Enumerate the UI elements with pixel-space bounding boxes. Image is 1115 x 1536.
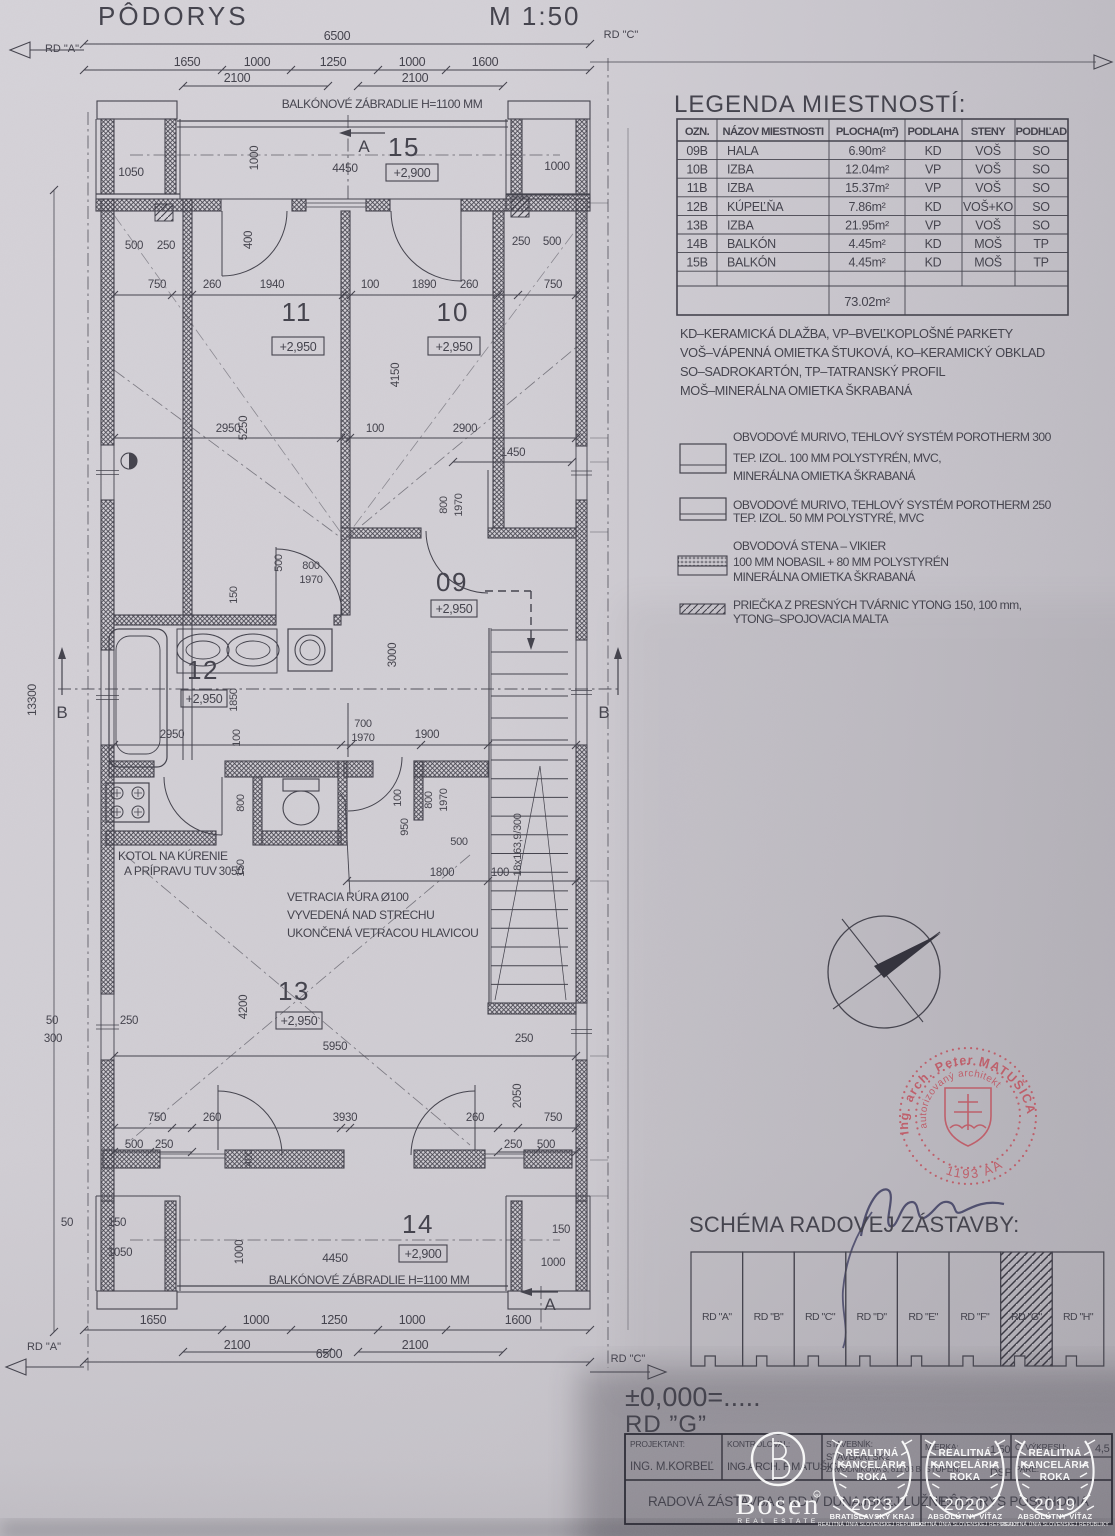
svg-text:12: 12 — [187, 655, 219, 685]
svg-text:5950: 5950 — [323, 1041, 347, 1053]
svg-text:1650: 1650 — [140, 1313, 167, 1327]
svg-text:KANCELÁRIA: KANCELÁRIA — [930, 1458, 999, 1471]
svg-text:7.86m²: 7.86m² — [848, 200, 885, 214]
svg-text:SO: SO — [1032, 144, 1050, 158]
svg-text:OZN.: OZN. — [685, 126, 710, 138]
svg-text:150: 150 — [235, 859, 247, 877]
svg-text:A: A — [544, 1295, 556, 1314]
svg-text:±0,000=.....: ±0,000=..... — [625, 1382, 761, 1412]
svg-text:3930: 3930 — [333, 1112, 357, 1124]
svg-text:300: 300 — [44, 1033, 62, 1045]
svg-text:260: 260 — [203, 279, 221, 291]
svg-text:1800: 1800 — [430, 867, 454, 879]
svg-text:HALA: HALA — [727, 144, 759, 158]
svg-text:VYVEDENÁ NAD STRECHU: VYVEDENÁ NAD STRECHU — [287, 907, 434, 922]
svg-text:BALKÓN: BALKÓN — [727, 236, 776, 251]
svg-text:1600: 1600 — [505, 1313, 532, 1327]
svg-text:500: 500 — [450, 836, 468, 848]
svg-text:M 1:50: M 1:50 — [489, 1, 581, 31]
svg-text:11B: 11B — [687, 181, 707, 195]
svg-text:SO: SO — [1032, 200, 1050, 214]
svg-text:1970: 1970 — [453, 493, 465, 516]
svg-text:A PRÍPRAVU TUV: A PRÍPRAVU TUV — [124, 863, 217, 878]
svg-text:KANCELÁRIA: KANCELÁRIA — [837, 1458, 906, 1471]
svg-text:2950: 2950 — [160, 729, 184, 741]
svg-text:21.95m²: 21.95m² — [845, 218, 889, 232]
svg-text:1970: 1970 — [351, 732, 374, 744]
svg-text:2050: 2050 — [512, 1084, 524, 1108]
svg-text:KD: KD — [925, 200, 942, 214]
svg-text:4.45m²: 4.45m² — [848, 237, 885, 251]
svg-text:1250: 1250 — [320, 55, 347, 69]
svg-text:6500: 6500 — [324, 29, 351, 43]
svg-text:RD "A": RD "A" — [702, 1311, 732, 1323]
svg-text:750: 750 — [148, 279, 166, 291]
svg-text:400: 400 — [243, 231, 255, 249]
svg-text:KD: KD — [925, 237, 942, 251]
svg-text:REAL ESTATE: REAL ESTATE — [737, 1518, 818, 1525]
svg-text:RD "A": RD "A" — [27, 1341, 61, 1353]
svg-text:BRATISLAVSKÝ KRAJ: BRATISLAVSKÝ KRAJ — [830, 1512, 915, 1521]
svg-text:IZBA: IZBA — [727, 181, 755, 195]
svg-text:REALITNÁ ÚNIA SLOVENSKEJ REPUB: REALITNÁ ÚNIA SLOVENSKEJ REPUBLIKY — [1001, 1521, 1109, 1528]
svg-text:RD "F": RD "F" — [960, 1311, 990, 1323]
svg-text:BALKÓN: BALKÓN — [727, 255, 776, 270]
svg-text:500: 500 — [125, 240, 143, 252]
svg-text:TP: TP — [1033, 256, 1048, 270]
svg-text:750: 750 — [544, 1112, 562, 1124]
svg-text:250: 250 — [504, 1139, 522, 1151]
svg-text:OBVODOVÉ MURIVO, TEHLOVÝ SYSTÉ: OBVODOVÉ MURIVO, TEHLOVÝ SYSTÉM POROTHER… — [733, 497, 1052, 512]
svg-text:KD–KERAMICKÁ DLAŽBA, VP–BVEĽKO: KD–KERAMICKÁ DLAŽBA, VP–BVEĽKOPLOŠNÉ PAR… — [680, 326, 1014, 341]
svg-text:UKONČENÁ VETRACOU HLAVICOU: UKONČENÁ VETRACOU HLAVICOU — [287, 925, 478, 940]
svg-text:700: 700 — [354, 718, 372, 730]
svg-text:250: 250 — [120, 1015, 138, 1027]
svg-text:STENY: STENY — [971, 126, 1006, 138]
svg-text:OBVODOVÉ MURIVO, TEHLOVÝ SYSTÉ: OBVODOVÉ MURIVO, TEHLOVÝ SYSTÉM POROTHER… — [733, 429, 1052, 444]
svg-text:+2,950: +2,950 — [280, 340, 317, 354]
svg-text:IZBA: IZBA — [727, 163, 755, 177]
svg-text:3000: 3000 — [387, 643, 399, 667]
svg-text:800: 800 — [438, 496, 450, 514]
svg-text:RD "G": RD "G" — [1011, 1311, 1042, 1323]
svg-text:100: 100 — [366, 423, 384, 435]
svg-text:REALITNÁ: REALITNÁ — [939, 1446, 992, 1459]
svg-text:2100: 2100 — [402, 1338, 429, 1352]
svg-text:4.45m²: 4.45m² — [848, 256, 885, 270]
svg-text:ROKA: ROKA — [1040, 1472, 1071, 1483]
svg-text:14B: 14B — [686, 237, 707, 251]
svg-text:2900: 2900 — [453, 423, 477, 435]
svg-text:SO: SO — [1032, 181, 1050, 195]
svg-text:VOŠ–VÁPENNÁ OMIETKA ŠTUKOVÁ, K: VOŠ–VÁPENNÁ OMIETKA ŠTUKOVÁ, KO–KERAMICK… — [680, 345, 1045, 360]
svg-text:800: 800 — [235, 794, 247, 812]
svg-text:RD "C": RD "C" — [805, 1311, 836, 1323]
svg-text:250: 250 — [512, 236, 530, 248]
svg-text:15: 15 — [388, 132, 420, 162]
svg-text:1000: 1000 — [541, 1257, 565, 1269]
svg-text:PLOCHA(m²): PLOCHA(m²) — [836, 126, 899, 138]
svg-text:YTONG–SPOJOVACIA MALTA: YTONG–SPOJOVACIA MALTA — [733, 612, 889, 626]
svg-text:1900: 1900 — [415, 729, 439, 741]
svg-text:VOŠ: VOŠ — [975, 143, 1001, 158]
svg-text:150: 150 — [228, 586, 240, 604]
svg-text:MOŠ–MINERÁLNA OMIETKA ŠKRABANÁ: MOŠ–MINERÁLNA OMIETKA ŠKRABANÁ — [680, 383, 913, 398]
svg-text:VOŠ+KO: VOŠ+KO — [963, 199, 1014, 214]
svg-text:1940: 1940 — [260, 279, 284, 291]
svg-text:4200: 4200 — [238, 995, 250, 1019]
svg-text:18x163,9/300: 18x163,9/300 — [512, 813, 524, 876]
svg-text:1050: 1050 — [108, 1247, 132, 1259]
svg-text:15.37m²: 15.37m² — [845, 181, 889, 195]
svg-text:100 MM NOBASIL + 80 MM POLYSTY: 100 MM NOBASIL + 80 MM POLYSTYRÉN — [733, 554, 948, 569]
svg-text:1000: 1000 — [243, 1313, 270, 1327]
svg-text:RD "H": RD "H" — [1063, 1311, 1094, 1323]
svg-text:KD: KD — [925, 144, 942, 158]
svg-text:13: 13 — [278, 976, 310, 1006]
svg-text:OBVODOVÁ STENA – VIKIER: OBVODOVÁ STENA – VIKIER — [733, 538, 886, 553]
svg-text:+2,950: +2,950 — [436, 340, 473, 354]
svg-text:1000: 1000 — [249, 146, 261, 170]
svg-text:1970: 1970 — [299, 574, 322, 586]
svg-text:1970: 1970 — [438, 788, 450, 811]
svg-text:13B: 13B — [686, 218, 707, 232]
svg-text:PÔDORYS: PÔDORYS — [98, 1, 249, 31]
svg-text:150: 150 — [108, 1217, 126, 1229]
svg-text:12.04m²: 12.04m² — [845, 163, 889, 177]
svg-text:VP: VP — [925, 181, 941, 195]
svg-text:TP: TP — [1033, 237, 1048, 251]
svg-text:1000: 1000 — [234, 1240, 246, 1264]
svg-text:+2,900: +2,900 — [405, 1247, 442, 1261]
svg-text:KD: KD — [925, 256, 942, 270]
svg-text:100: 100 — [392, 789, 404, 807]
svg-text:2950: 2950 — [216, 423, 240, 435]
svg-text:VOŠ: VOŠ — [975, 217, 1001, 232]
svg-text:500: 500 — [125, 1139, 143, 1151]
svg-text:ROKA: ROKA — [857, 1472, 888, 1483]
svg-text:500: 500 — [543, 236, 561, 248]
svg-text:73.02m²: 73.02m² — [844, 294, 891, 309]
svg-text:PRIEČKA Z PRESNÝCH TVÁRNIC YTO: PRIEČKA Z PRESNÝCH TVÁRNIC YTONG 150, 10… — [733, 597, 1022, 612]
svg-text:ROKA: ROKA — [950, 1472, 981, 1483]
svg-text:PODLAHA: PODLAHA — [907, 126, 959, 138]
svg-text:+2,950: +2,950 — [281, 1014, 318, 1028]
svg-text:BALKÓNOVÉ ZÁBRADLIE H=1100 MM: BALKÓNOVÉ ZÁBRADLIE H=1100 MM — [269, 1272, 470, 1287]
svg-text:10: 10 — [437, 297, 470, 327]
svg-text:ABSOLÚTNY VÍŤAZ: ABSOLÚTNY VÍŤAZ — [1018, 1512, 1093, 1521]
svg-text:1000: 1000 — [399, 1313, 426, 1327]
svg-text:2100: 2100 — [402, 71, 429, 85]
svg-text:VP: VP — [925, 218, 941, 232]
svg-text:VOŠ: VOŠ — [975, 180, 1001, 195]
svg-text:150: 150 — [552, 1224, 570, 1236]
svg-text:100: 100 — [231, 729, 243, 747]
svg-text:12B: 12B — [686, 200, 707, 214]
svg-text:KOTOL NA KÚRENIE: KOTOL NA KÚRENIE — [118, 848, 228, 863]
svg-text:260: 260 — [460, 279, 478, 291]
svg-text:1650: 1650 — [174, 55, 201, 69]
svg-text:ING. M.KORBEĽ: ING. M.KORBEĽ — [630, 1461, 714, 1473]
svg-text:6500: 6500 — [316, 1347, 343, 1361]
svg-text:VETRACIA RÚRA Ø100: VETRACIA RÚRA Ø100 — [287, 889, 409, 904]
svg-text:4150: 4150 — [390, 363, 402, 387]
svg-text:TEP. IZOL. 50 MM POLYSTYRÉ, MV: TEP. IZOL. 50 MM POLYSTYRÉ, MVC — [733, 510, 925, 525]
svg-text:1600: 1600 — [472, 55, 499, 69]
svg-text:950: 950 — [399, 818, 411, 836]
svg-text:REALITNÁ: REALITNÁ — [1029, 1446, 1082, 1459]
svg-text:10B: 10B — [686, 163, 707, 177]
svg-text:250: 250 — [515, 1033, 533, 1045]
svg-text:MOŠ: MOŠ — [974, 236, 1002, 251]
svg-text:50: 50 — [46, 1015, 58, 1027]
svg-text:1000: 1000 — [399, 55, 426, 69]
svg-text:MINERÁLNA OMIETKA ŠKRABANÁ: MINERÁLNA OMIETKA ŠKRABANÁ — [733, 569, 916, 584]
svg-text:14: 14 — [402, 1209, 434, 1239]
svg-text:SCHÉMA RADOVEJ ZÁSTAVBY:: SCHÉMA RADOVEJ ZÁSTAVBY: — [689, 1212, 1019, 1237]
svg-text:500: 500 — [273, 554, 285, 572]
svg-text:TEP. IZOL. 100 MM POLYSTYRÉN,: TEP. IZOL. 100 MM POLYSTYRÉN, MVC, — [733, 450, 941, 465]
svg-text:REALITNÁ: REALITNÁ — [846, 1446, 899, 1459]
svg-text:VOŠ: VOŠ — [975, 162, 1001, 177]
svg-text:RD "C": RD "C" — [604, 29, 639, 41]
svg-text:2100: 2100 — [224, 1338, 251, 1352]
svg-text:750: 750 — [148, 1112, 166, 1124]
svg-text:+2,950: +2,950 — [436, 602, 473, 616]
svg-text:+2,950: +2,950 — [186, 692, 223, 706]
svg-text:4450: 4450 — [332, 161, 358, 175]
svg-text:100: 100 — [491, 867, 509, 879]
svg-text:100: 100 — [361, 279, 379, 291]
svg-text:BALKÓNOVÉ ZÁBRADLIE H=1100 MM: BALKÓNOVÉ ZÁBRADLIE H=1100 MM — [282, 96, 483, 111]
svg-text:1000: 1000 — [544, 159, 570, 173]
svg-text:+2,900: +2,900 — [394, 166, 431, 180]
svg-text:1050: 1050 — [118, 165, 144, 179]
svg-text:1250: 1250 — [321, 1313, 348, 1327]
svg-text:RD "B": RD "B" — [754, 1311, 784, 1323]
svg-text:PODHĽAD: PODHĽAD — [1015, 126, 1067, 138]
svg-text:13300: 13300 — [25, 683, 39, 715]
svg-text:4,5: 4,5 — [1095, 1443, 1110, 1455]
svg-text:250: 250 — [157, 240, 175, 252]
svg-text:1890: 1890 — [412, 279, 436, 291]
svg-text:RD "D": RD "D" — [857, 1311, 888, 1323]
svg-text:750: 750 — [544, 279, 562, 291]
svg-text:11: 11 — [282, 297, 313, 327]
svg-text:1850: 1850 — [228, 688, 240, 711]
svg-text:500: 500 — [537, 1139, 555, 1151]
svg-text:KÚPEĽŇA: KÚPEĽŇA — [727, 199, 784, 214]
svg-text:1000: 1000 — [244, 55, 271, 69]
svg-text:800: 800 — [423, 791, 435, 809]
svg-text:LEGENDA MIESTNOSTÍ:: LEGENDA MIESTNOSTÍ: — [674, 91, 966, 118]
svg-text:250: 250 — [155, 1139, 173, 1151]
svg-text:MOŠ: MOŠ — [974, 255, 1002, 270]
svg-text:2100: 2100 — [224, 71, 251, 85]
svg-text:Bosen: Bosen — [736, 1488, 821, 1521]
svg-text:PROJEKTANT:: PROJEKTANT: — [630, 1439, 685, 1449]
svg-text:6.90m²: 6.90m² — [848, 144, 885, 158]
svg-text:09: 09 — [436, 567, 468, 597]
svg-text:RD "C": RD "C" — [611, 1353, 646, 1365]
svg-text:1450: 1450 — [501, 447, 525, 459]
svg-text:B: B — [598, 703, 609, 722]
svg-text:IZBA: IZBA — [727, 218, 755, 232]
svg-text:ABSOLÚTNY VÍŤAZ: ABSOLÚTNY VÍŤAZ — [928, 1512, 1003, 1521]
svg-text:VP: VP — [925, 163, 941, 177]
svg-text:RD "E": RD "E" — [908, 1311, 938, 1323]
svg-text:NÁZOV MIESTNOSTI: NÁZOV MIESTNOSTI — [722, 125, 824, 138]
svg-text:SO: SO — [1032, 218, 1050, 232]
svg-text:SO–SADROKARTÓN, TP–TATRANSKÝ P: SO–SADROKARTÓN, TP–TATRANSKÝ PROFIL — [680, 364, 946, 379]
svg-text:KANCELÁRIA: KANCELÁRIA — [1020, 1458, 1089, 1471]
svg-text:800: 800 — [302, 560, 320, 572]
svg-text:09B: 09B — [686, 144, 707, 158]
svg-text:A: A — [358, 137, 370, 156]
svg-text:RD "A": RD "A" — [45, 43, 79, 55]
svg-text:50: 50 — [61, 1217, 73, 1229]
svg-text:MINERÁLNA OMIETKA ŠKRABANÁ: MINERÁLNA OMIETKA ŠKRABANÁ — [733, 468, 916, 483]
svg-text:4450: 4450 — [322, 1251, 348, 1265]
svg-text:15B: 15B — [686, 256, 707, 270]
svg-text:SO: SO — [1032, 163, 1050, 177]
svg-text:B: B — [56, 703, 67, 722]
